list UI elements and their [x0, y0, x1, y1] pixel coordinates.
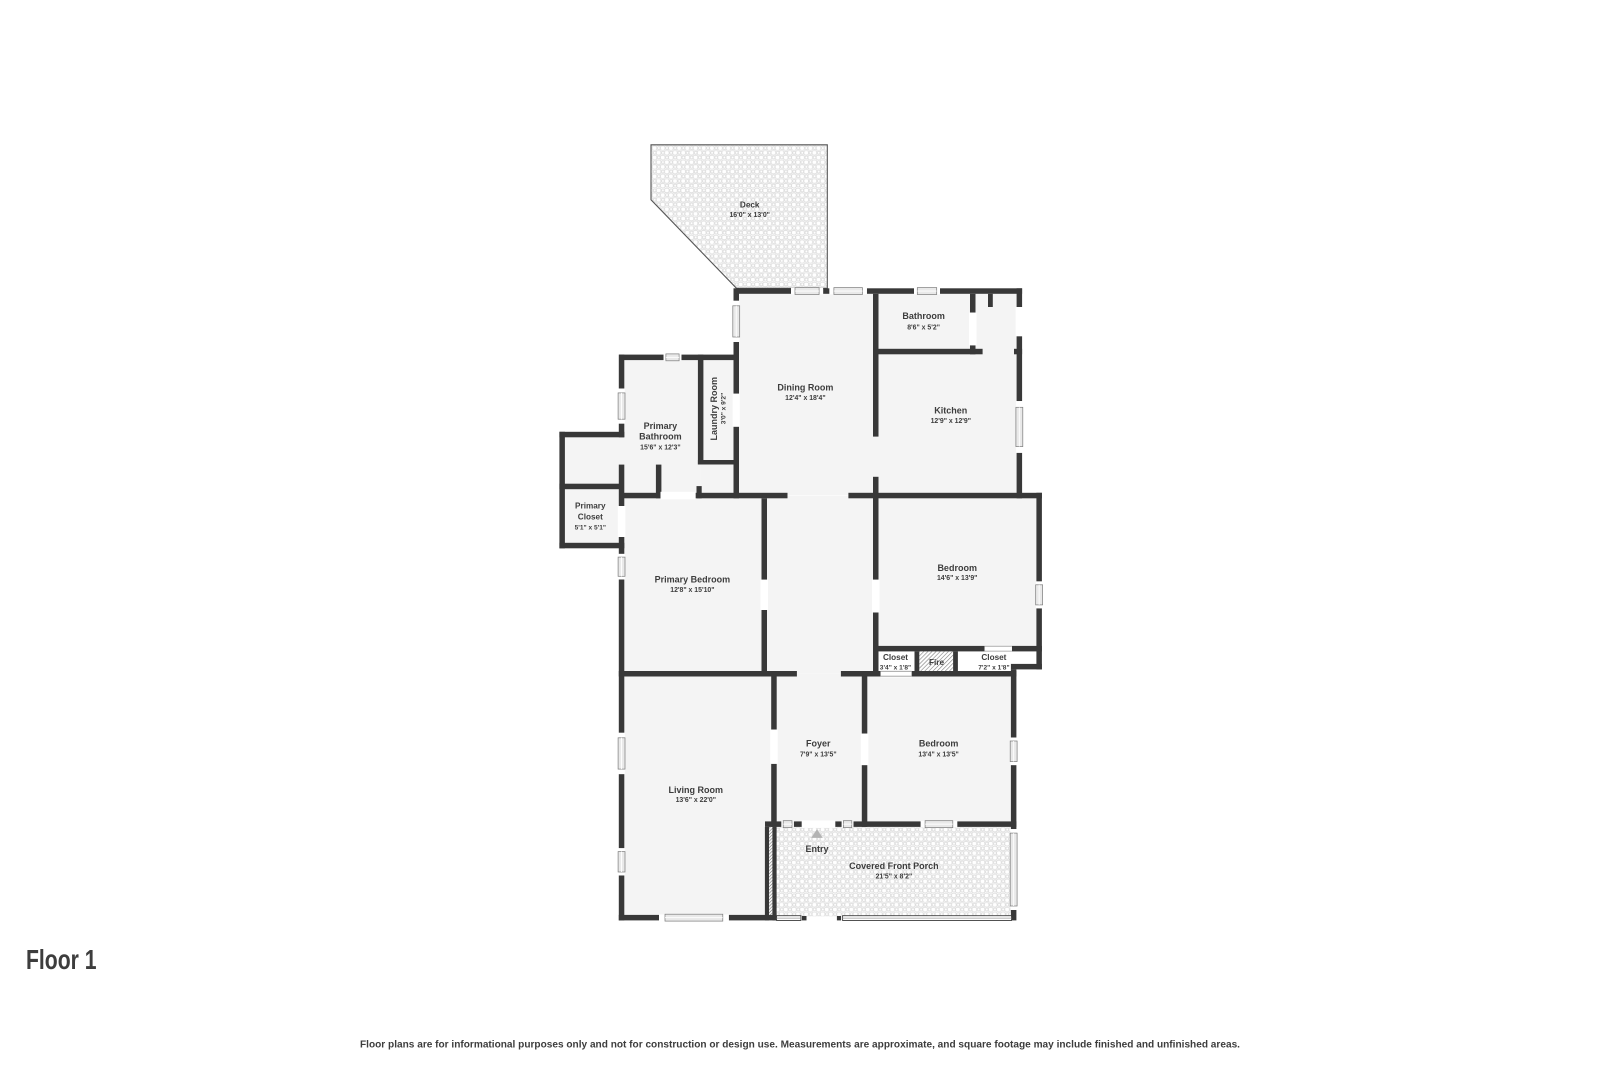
- svg-text:Bathroom: Bathroom: [902, 311, 945, 321]
- svg-text:Primary Bedroom: Primary Bedroom: [655, 575, 731, 585]
- svg-text:16'0" x 13'0": 16'0" x 13'0": [729, 212, 769, 219]
- svg-text:12'8" x 15'10": 12'8" x 15'10": [670, 587, 714, 594]
- svg-text:14'6" x 13'9": 14'6" x 13'9": [937, 575, 977, 582]
- svg-text:Closet: Closet: [578, 513, 603, 522]
- svg-text:3'0" x 9'2": 3'0" x 9'2": [721, 393, 728, 424]
- svg-text:Entry: Entry: [805, 844, 828, 854]
- svg-text:Closet: Closet: [981, 653, 1006, 662]
- svg-text:Foyer: Foyer: [806, 739, 831, 749]
- svg-text:8'6" x 5'2": 8'6" x 5'2": [907, 325, 940, 332]
- svg-text:Floor plans are for informatio: Floor plans are for informational purpos…: [360, 1039, 1240, 1050]
- svg-text:7'2" x 1'8": 7'2" x 1'8": [978, 665, 1009, 672]
- svg-text:13'6" x 22'0": 13'6" x 22'0": [676, 797, 716, 804]
- svg-text:Dining Room: Dining Room: [777, 383, 833, 393]
- svg-text:Bedroom: Bedroom: [937, 563, 977, 573]
- svg-text:Closet: Closet: [883, 653, 908, 662]
- svg-text:15'6" x 12'3": 15'6" x 12'3": [640, 445, 680, 452]
- svg-text:Bathroom: Bathroom: [639, 432, 682, 442]
- svg-text:Primary: Primary: [644, 421, 678, 431]
- svg-text:Covered Front Porch: Covered Front Porch: [849, 861, 939, 871]
- svg-text:3'4" x 1'8": 3'4" x 1'8": [880, 665, 911, 672]
- svg-text:Kitchen: Kitchen: [934, 406, 967, 416]
- svg-text:Living Room: Living Room: [669, 785, 724, 795]
- svg-text:Deck: Deck: [740, 200, 760, 209]
- svg-text:21'5" x 8'2": 21'5" x 8'2": [876, 874, 913, 881]
- svg-text:7'9" x 13'5": 7'9" x 13'5": [800, 751, 837, 758]
- svg-text:12'9" x 12'9": 12'9" x 12'9": [931, 418, 971, 425]
- svg-text:12'4" x 18'4": 12'4" x 18'4": [785, 395, 825, 402]
- svg-text:5'1" x 5'1": 5'1" x 5'1": [575, 525, 606, 532]
- svg-text:Primary: Primary: [575, 502, 606, 511]
- svg-text:Bedroom: Bedroom: [919, 739, 959, 749]
- svg-text:Laundry Room: Laundry Room: [709, 377, 719, 441]
- svg-text:Fire: Fire: [929, 658, 944, 667]
- svg-text:Floor 1: Floor 1: [26, 944, 97, 975]
- svg-text:13'4" x 13'5": 13'4" x 13'5": [918, 751, 958, 758]
